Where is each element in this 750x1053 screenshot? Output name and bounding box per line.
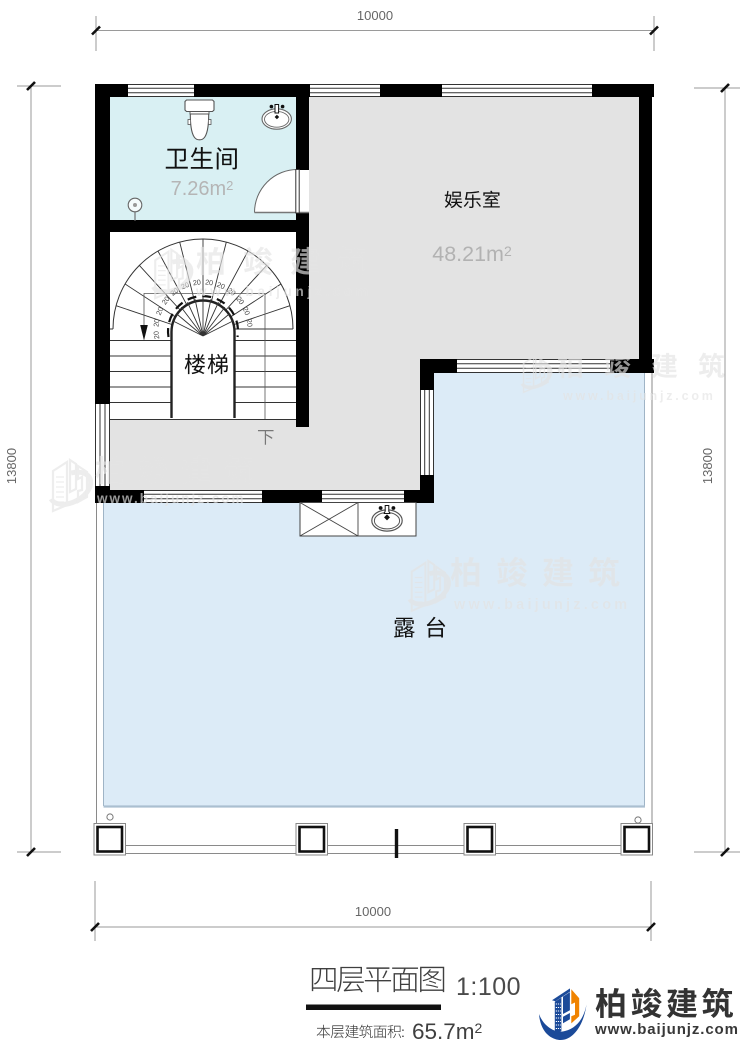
svg-text:www.baijunjz.com: www.baijunjz.com	[96, 491, 246, 506]
svg-text:www.baijunjz.com: www.baijunjz.com	[453, 597, 630, 613]
svg-text::: :	[401, 1024, 405, 1040]
svg-text:www.baijunjz.com: www.baijunjz.com	[562, 389, 716, 403]
svg-text:65.7m2: 65.7m2	[412, 1019, 483, 1044]
svg-text:20: 20	[151, 318, 161, 327]
svg-text:1:100: 1:100	[456, 973, 521, 1001]
svg-text:10000: 10000	[357, 8, 393, 23]
svg-text:20: 20	[245, 318, 255, 327]
svg-text:48.21m2: 48.21m2	[432, 242, 512, 266]
svg-text:10000: 10000	[355, 904, 391, 919]
svg-text:7.26m2: 7.26m2	[171, 178, 234, 200]
svg-text:www.baijunjz.com: www.baijunjz.com	[594, 1021, 739, 1038]
svg-text:20: 20	[151, 331, 161, 340]
svg-text:www.baijunjz.com: www.baijunjz.com	[195, 284, 372, 299]
svg-text:13800: 13800	[4, 448, 19, 484]
svg-text:13800: 13800	[700, 448, 715, 484]
